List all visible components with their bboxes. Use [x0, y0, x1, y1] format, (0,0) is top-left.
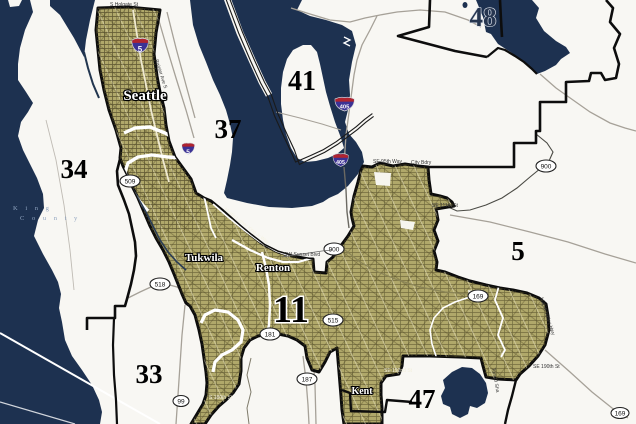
svg-text:SE 111th St: SE 111th St	[432, 203, 459, 209]
svg-text:S Holgate St: S Holgate St	[110, 2, 139, 8]
svg-text:169: 169	[473, 294, 484, 301]
svg-text:11: 11	[273, 289, 309, 331]
svg-text:SE 192nd St: SE 192nd St	[384, 368, 413, 374]
svg-text:48: 48	[470, 2, 497, 32]
svg-text:Renton: Renton	[256, 262, 290, 274]
svg-text:405: 405	[336, 160, 345, 166]
svg-text:47: 47	[409, 384, 436, 414]
svg-text:33: 33	[136, 359, 163, 389]
svg-text:SW Sunset Blvd: SW Sunset Blvd	[284, 252, 320, 258]
svg-text:169: 169	[615, 411, 626, 418]
svg-text:37: 37	[215, 114, 242, 144]
svg-text:C o u n t y: C o u n t y	[20, 215, 80, 222]
svg-text:5: 5	[138, 45, 143, 54]
svg-text:5: 5	[511, 236, 525, 266]
svg-text:S 180th St: S 180th St	[209, 395, 233, 401]
svg-text:99: 99	[177, 399, 185, 406]
svg-text:Tukwila: Tukwila	[185, 252, 224, 264]
svg-text:187: 187	[302, 377, 313, 384]
svg-text:SE 95th Way: SE 95th Way	[373, 159, 402, 165]
svg-text:City Bdry: City Bdry	[411, 160, 432, 166]
svg-text:Kent: Kent	[351, 386, 373, 397]
svg-text:K i n g: K i n g	[13, 205, 52, 212]
svg-text:515: 515	[328, 318, 339, 325]
svg-text:405: 405	[340, 105, 350, 111]
svg-text:41: 41	[288, 66, 316, 97]
svg-text:5: 5	[186, 149, 190, 156]
svg-text:34: 34	[61, 154, 88, 184]
svg-text:Seattle: Seattle	[123, 88, 167, 104]
svg-text:SE 190th St: SE 190th St	[533, 364, 560, 370]
svg-text:181: 181	[265, 332, 276, 339]
svg-text:509: 509	[125, 179, 136, 186]
svg-text:518: 518	[155, 282, 166, 289]
svg-text:900: 900	[541, 164, 552, 171]
